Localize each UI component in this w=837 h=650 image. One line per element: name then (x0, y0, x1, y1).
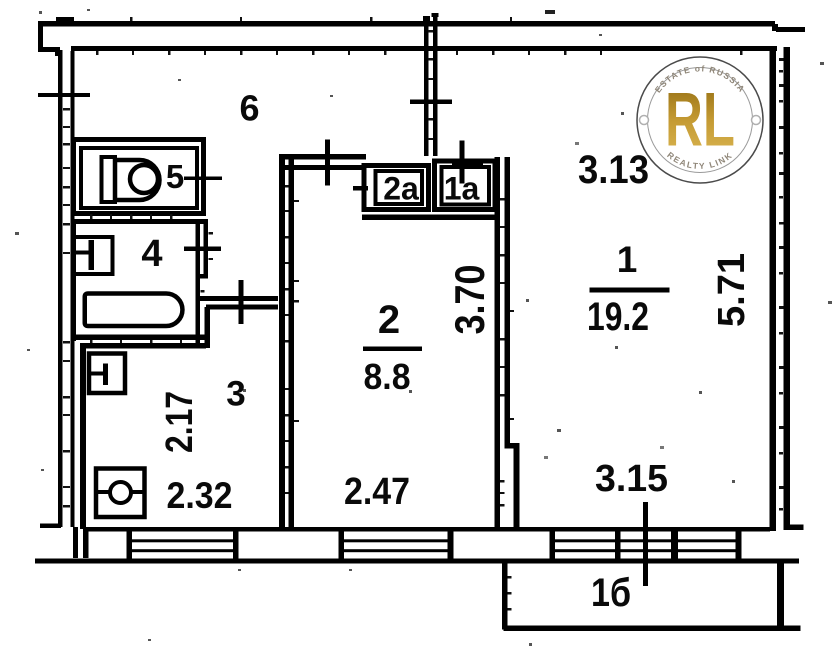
svg-text:3: 3 (226, 375, 245, 414)
svg-text:3.13: 3.13 (578, 148, 649, 192)
svg-text:4: 4 (141, 233, 162, 275)
svg-text:1б: 1б (591, 571, 631, 615)
svg-text:2a: 2a (383, 171, 419, 207)
svg-text:2.47: 2.47 (344, 471, 410, 513)
svg-text:8.8: 8.8 (364, 356, 411, 397)
svg-text:5: 5 (166, 158, 184, 195)
svg-text:2.32: 2.32 (167, 475, 233, 516)
svg-text:RL: RL (665, 78, 735, 163)
svg-text:5.71: 5.71 (711, 253, 753, 327)
svg-text:19.2: 19.2 (587, 295, 649, 339)
svg-text:3.15: 3.15 (595, 458, 668, 500)
svg-text:2: 2 (378, 298, 400, 342)
svg-text:2.17: 2.17 (159, 391, 201, 453)
svg-text:1: 1 (617, 239, 638, 280)
svg-text:6: 6 (239, 88, 259, 129)
svg-text:3.70: 3.70 (446, 265, 493, 335)
